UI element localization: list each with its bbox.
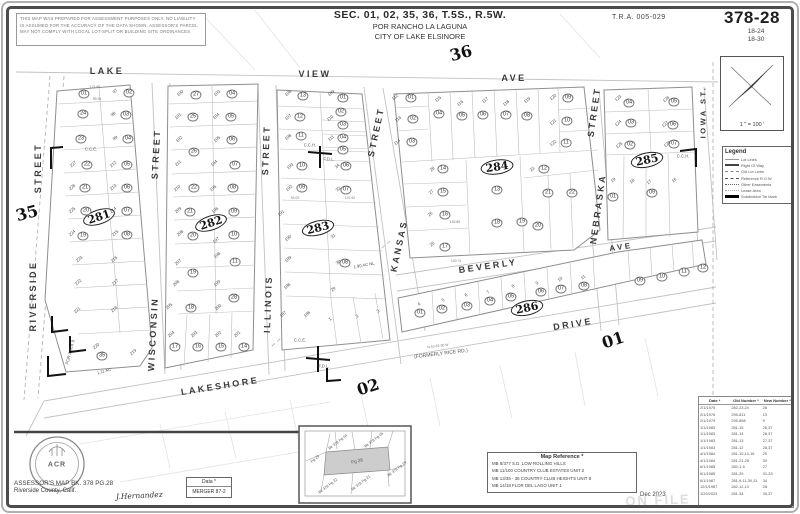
map-reference-entry: MB 13/35 - 36 COUNTRY CLUB HEIGHTS UNIT … [488,475,636,482]
table-cell: 28,37 [762,445,793,452]
revision-date: Dec 2023 [640,492,666,498]
table-cell: 27,37 [762,438,793,445]
cross-references: 18-24 18-30 [736,28,776,44]
disclaimer-line: THIS MAP WAS PREPARED FOR ASSESSMENT PUR… [20,16,202,23]
disclaimer-line: MAY NOT COMPLY WITH LOCAL LOT-SPLIT OR B… [20,29,202,36]
disclaimer-box: THIS MAP WAS PREPARED FOR ASSESSMENT PUR… [16,13,206,46]
cross-ref-1: 18-24 [736,28,776,36]
table-cell: 31-33 [762,471,793,478]
table-cell: 295-811 [730,412,761,419]
table-cell: 2/1/1975 [699,405,730,412]
table-cell: 9 [762,418,793,425]
assessor-map-sheet: THIS MAP WAS PREPARED FOR ASSESSMENT PUR… [0,0,800,514]
legend-label: Lease Area [741,188,761,193]
table-cell: 34 [762,478,793,485]
legend-label: Right Of Way [741,163,764,168]
table-cell: 1/1/1983 [699,445,730,452]
table-row: 1/29/2023281-3435,37 [699,491,793,498]
table-cell: 4/1/1984 [699,458,730,465]
table-cell: 2/1/1976 [699,412,730,419]
table-cell: 281-29 [730,471,761,478]
table-row: 2/1/1979295-8989 [699,418,793,425]
assessor-county: Riverside County, Calif. [14,488,113,494]
table-row: 2/1/1975282-23,2428 [699,405,793,412]
legend-box: Legend Lot LinesRight Of WayOld Lot Line… [722,146,794,204]
table-row: 6/1/1985281-2931-33 [699,471,793,478]
map-reference-entry: MB 14/18 FLOR DEL LAGO UNIT 1 [488,482,636,489]
table-cell: 281-13 [730,438,761,445]
table-cell: 281-15 [730,425,761,432]
table-cell: 27 [762,464,793,471]
table-cell: 281-9-11,30,31 [730,478,761,485]
table-cell: 281-12 [730,445,761,452]
table-cell: 26,37 [762,425,793,432]
scale-text: 1 " = 100 ' [721,122,783,128]
title-subline1: POR RANCHO LA LAGUNA [300,22,540,31]
table-cell: 281-14 [730,431,761,438]
table-row: 2/1/1976295-81113 [699,412,793,419]
legend-items: Lot LinesRight Of WayOld Lot LinesRefere… [725,156,791,200]
data-box-value: MERGER 87-2 [187,487,231,497]
page-title: SEC. 01, 02, 35, 36, T.5S., R.5W. [300,9,540,21]
table-cell: 281-10,14-16 [730,451,761,458]
legend-swatch-dots-icon [725,190,739,191]
table-cell: 30 [762,458,793,465]
map-linework [0,0,800,514]
table-row: 6/1/1985282-1-527 [699,464,793,471]
table-cell: 28 [762,484,793,491]
change-table-header: Old Number * [730,397,761,405]
map-reference-entries: MB 8/377 S.D. LOW ROLLING HILLSMB 11/100… [488,460,636,490]
legend-item: Subdivision Tie Mark [725,194,791,200]
cross-ref-2: 18-30 [736,36,776,44]
table-cell: 6/1/1985 [699,464,730,471]
table-cell: 26,37 [762,431,793,438]
table-cell: 282-1-5 [730,464,761,471]
table-cell: 1/29/2023 [699,491,730,498]
table-row: 1/1/1983281-1526,37 [699,425,793,432]
compass-box: 1 " = 100 ' [720,56,784,131]
legend-swatch-dash-icon [725,171,739,172]
legend-swatch-thick-icon [725,164,739,166]
legend-title: Legend [725,149,791,155]
legend-label: Other Easements [741,182,771,187]
table-cell: 4/1/1984 [699,451,730,458]
table-cell: 35,37 [762,491,793,498]
change-table-header: Date * [699,397,730,405]
table-row: 12/1/1987282-12,1328 [699,484,793,491]
table-row: 1/1/1983281-1228,37 [699,445,793,452]
legend-label: Reference R.O.W [741,176,772,181]
table-cell: 281-21-25 [730,458,761,465]
table-cell: 6/1/1987 [699,478,730,485]
table-cell: 282-12,13 [730,484,761,491]
legend-swatch-dashes-icon [725,184,739,185]
data-box: Data * MERGER 87-2 [186,477,232,498]
table-cell: 1/1/1983 [699,425,730,432]
map-reference-box: Map Reference * MB 8/377 S.D. LOW ROLLIN… [487,452,637,493]
title-block: SEC. 01, 02, 35, 36, T.5S., R.5W. POR RA… [300,9,540,41]
table-row: 6/1/1987281-9-11,30,3134 [699,478,793,485]
assessor-map-number: ASSESSOR'S MAP BK. 378 PG.28 [14,480,113,487]
legend-swatch-thin-icon [725,159,739,160]
table-cell: 6/1/1985 [699,471,730,478]
table-cell: 28 [762,405,793,412]
table-row: 4/1/1984281-21-2530 [699,458,793,465]
table-cell: 1/1/1983 [699,431,730,438]
map-reference-entry: MB 8/377 S.D. LOW ROLLING HILLS [488,460,636,467]
table-cell: 282-23,24 [730,405,761,412]
map-reference-entry: MB 11/100 COUNTRY CLUB ESTATES UNIT 2 [488,467,636,474]
table-cell: 12/1/1987 [699,484,730,491]
legend-swatch-heavy-icon [725,195,739,198]
table-row: 4/1/1984281-10,14-1629 [699,451,793,458]
assessor-note: ASSESSOR'S MAP BK. 378 PG.28 Riverside C… [14,480,113,494]
change-table-header: New Number * [762,397,793,405]
title-subline2: CITY OF LAKE ELSINORE [300,32,540,41]
table-cell: 13 [762,412,793,419]
table-row: 1/1/1983281-1327,37 [699,438,793,445]
sheet-number: 378-28 [724,8,780,28]
disclaimer-line: IS ASSUMED FOR THE ACCURACY OF THE DATA … [20,23,202,30]
block-outlines [45,84,706,372]
inset-index-map [299,426,411,503]
table-cell: 2/1/1979 [699,418,730,425]
data-box-title: Data * [187,478,231,487]
legend-label: Old Lot Lines [741,169,764,174]
table-cell: 29 [762,451,793,458]
compass-rose-icon [721,57,780,115]
parcel-change-table: Date *Old Number *New Number * 2/1/19752… [698,396,794,508]
table-row: 1/1/1983281-1426,37 [699,431,793,438]
legend-label: Lot Lines [741,157,757,162]
tra-number: T.R.A. 005-029 [612,14,666,21]
table-cell: 295-898 [730,418,761,425]
legend-swatch-dashdot-icon [725,178,739,179]
table-cell: 281-34 [730,491,761,498]
table-cell: 1/1/1983 [699,438,730,445]
legend-label: Subdivision Tie Mark [741,194,777,199]
